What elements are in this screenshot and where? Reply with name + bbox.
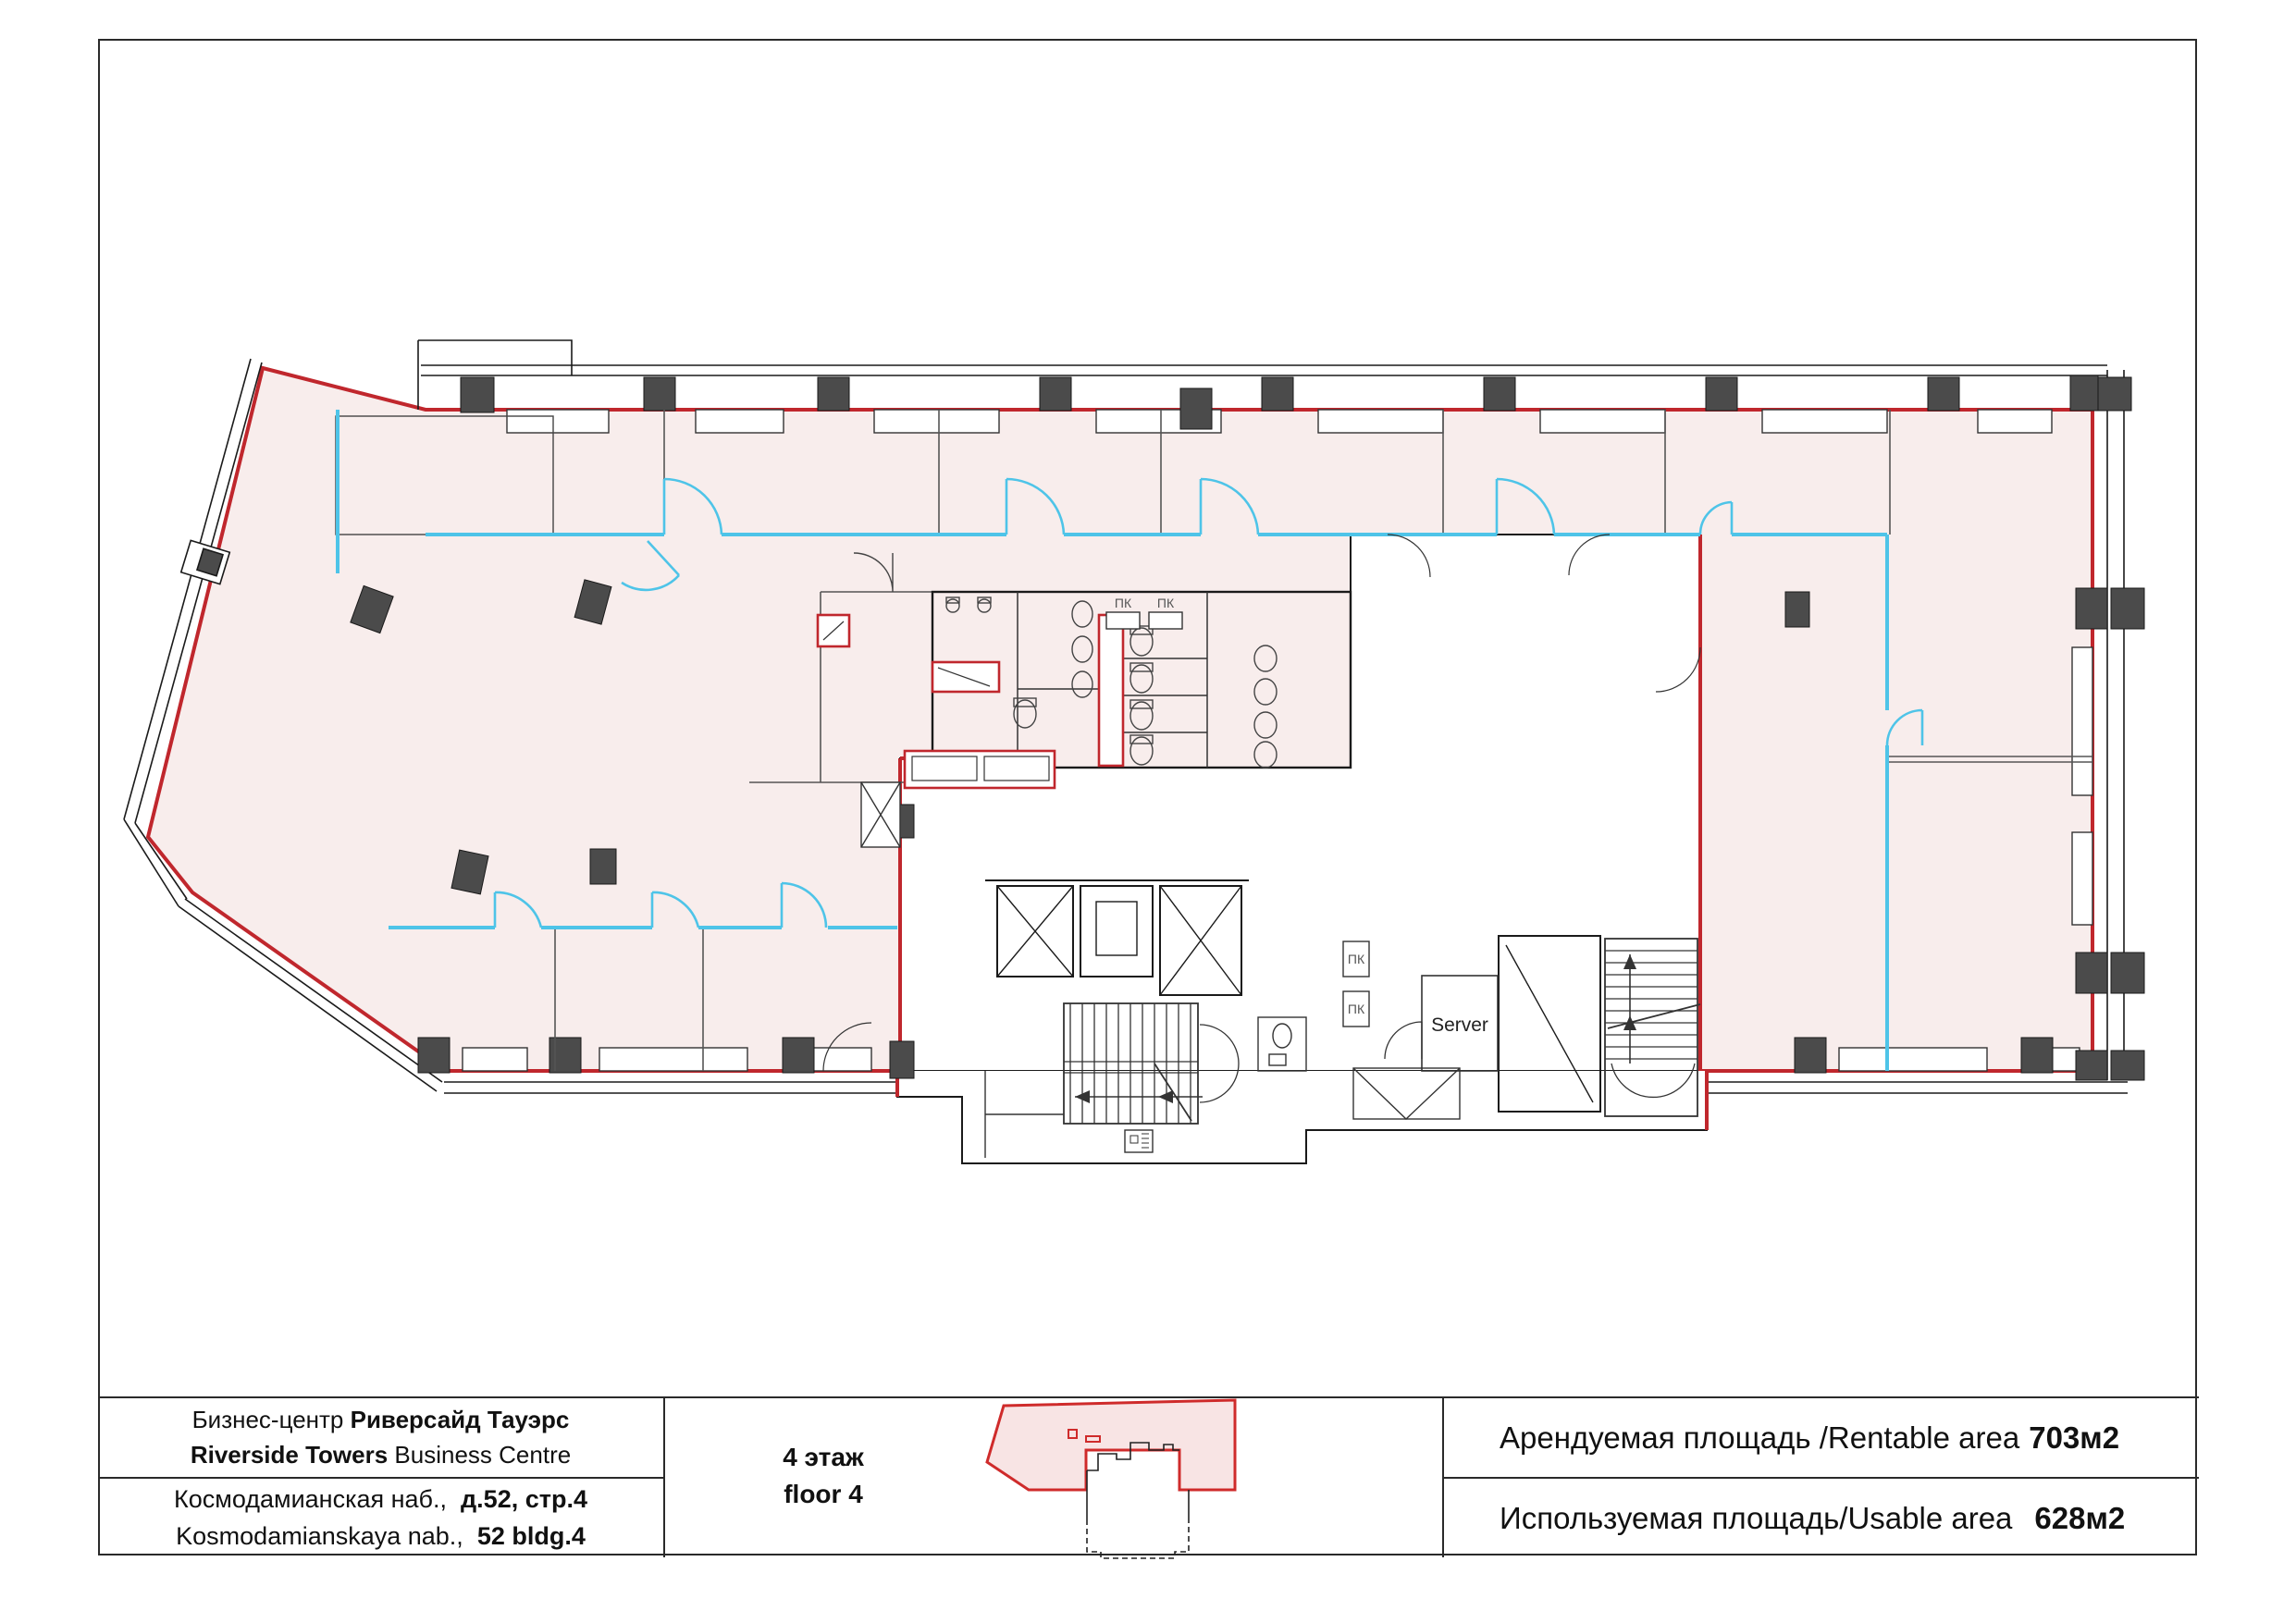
duct-shaft [1099, 615, 1123, 766]
shaft [861, 782, 900, 847]
key-plan-tower-footprint [1087, 1519, 1189, 1558]
usable-area-label: Используемая площадь/Usable area [1500, 1501, 2012, 1536]
address-en-number: 52 bldg.4 [477, 1522, 586, 1550]
title-block-divider [663, 1396, 665, 1557]
company-ru-prefix: Бизнес-центр [192, 1406, 351, 1433]
server-room-label: Server [1431, 1014, 1488, 1036]
floor-plan: Server ПК ПК ПК ПК [0, 0, 2296, 1623]
vanity-counter [932, 662, 999, 692]
rentable-area-value: 703м2 [2029, 1420, 2119, 1456]
floor-label-en: floor 4 [784, 1476, 863, 1513]
usable-area-value: 628м2 [2034, 1501, 2125, 1536]
address-ru-number: д.52, стр.4 [461, 1485, 587, 1513]
company-ru-name: Риверсайд Тауэрс [351, 1406, 570, 1433]
building-name-ru: Бизнес-центр Риверсайд Тауэрс [192, 1402, 570, 1437]
fire-cabinet-label: ПК [1348, 1002, 1365, 1016]
usable-area-row: Используемая площадь/Usable area 628м2 [1444, 1479, 2197, 1558]
fire-cabinet-label: ПК [1348, 952, 1365, 966]
rentable-area-label: Арендуемая площадь /Rentable area [1500, 1420, 2019, 1456]
building-name-cell: Бизнес-центр Риверсайд Тауэрс Riverside … [98, 1398, 663, 1476]
fire-cabinet-label: ПК [1115, 596, 1132, 610]
address-en: Kosmodamianskaya nab., 52 bldg.4 [176, 1518, 586, 1555]
address-ru-street: Космодамианская наб., [174, 1485, 461, 1513]
toilet-entry-doors [905, 751, 1055, 788]
rentable-area-row: Арендуемая площадь /Rentable area 703м2 [1444, 1398, 2197, 1478]
address-ru: Космодамианская наб., д.52, стр.4 [174, 1481, 587, 1518]
key-plan [982, 1385, 1260, 1584]
core-lower-protrusion [897, 1071, 1707, 1163]
company-en-suffix: Business Centre [388, 1441, 571, 1469]
floor-label-ru: 4 этаж [783, 1439, 864, 1476]
drawing-sheet: Server ПК ПК ПК ПК Бизнес-центр Риверсай… [0, 0, 2296, 1623]
address-en-street: Kosmodamianskaya nab., [176, 1522, 477, 1550]
key-plan-floor-outline [987, 1400, 1235, 1490]
company-en-name: Riverside Towers [191, 1441, 388, 1469]
address-cell: Космодамианская наб., д.52, стр.4 Kosmod… [98, 1479, 663, 1555]
building-name-en: Riverside Towers Business Centre [191, 1437, 571, 1472]
fire-cabinet-label: ПК [1157, 596, 1175, 610]
floor-label: 4 этаж floor 4 [685, 1396, 962, 1555]
